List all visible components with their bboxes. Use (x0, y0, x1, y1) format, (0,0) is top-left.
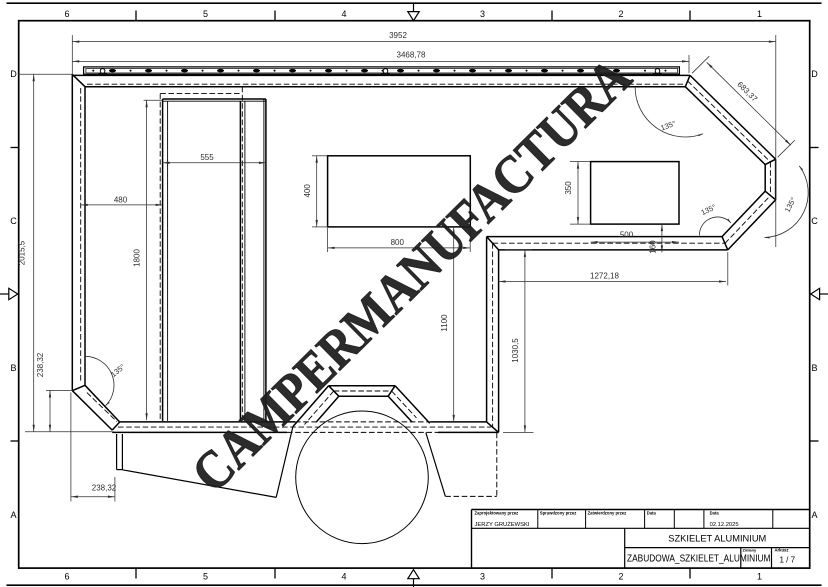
svg-text:Zatwierdzony przez: Zatwierdzony przez (588, 511, 627, 516)
svg-text:SZKIELET ALUMINIUM: SZKIELET ALUMINIUM (668, 533, 766, 543)
svg-text:6: 6 (64, 9, 69, 19)
svg-text:5: 5 (203, 9, 208, 19)
svg-text:02.12.2025: 02.12.2025 (710, 522, 739, 528)
svg-text:1030,5: 1030,5 (511, 338, 520, 363)
svg-text:3952: 3952 (389, 31, 407, 40)
svg-text:Data: Data (710, 511, 720, 516)
svg-text:350: 350 (564, 181, 573, 195)
svg-text:5: 5 (203, 572, 208, 582)
svg-text:6: 6 (64, 572, 69, 582)
svg-text:2: 2 (618, 572, 623, 582)
svg-text:4: 4 (341, 572, 346, 582)
svg-text:1 / 7: 1 / 7 (780, 556, 796, 565)
svg-text:C: C (10, 216, 17, 226)
svg-text:4: 4 (341, 9, 346, 19)
svg-text:3: 3 (480, 9, 485, 19)
svg-text:A: A (811, 510, 817, 520)
svg-text:Zaprojektowany przez: Zaprojektowany przez (475, 511, 519, 516)
svg-text:500: 500 (620, 231, 634, 240)
svg-text:238,32: 238,32 (36, 352, 45, 377)
svg-text:160: 160 (649, 240, 658, 254)
svg-text:400: 400 (303, 184, 312, 198)
svg-text:1: 1 (757, 572, 762, 582)
svg-text:Sprawdzony przez: Sprawdzony przez (540, 511, 577, 516)
svg-text:JERZY GRUŻEWSKI: JERZY GRUŻEWSKI (475, 521, 530, 528)
svg-text:D: D (10, 69, 17, 79)
svg-text:Arkusz: Arkusz (775, 548, 789, 553)
svg-text:A: A (10, 510, 16, 520)
svg-text:B: B (811, 363, 817, 373)
svg-text:555: 555 (200, 153, 214, 162)
svg-text:B: B (10, 363, 16, 373)
svg-text:1100: 1100 (440, 314, 449, 332)
svg-text:238,32: 238,32 (92, 483, 117, 492)
svg-text:3468,78: 3468,78 (397, 51, 426, 60)
svg-text:2: 2 (618, 9, 623, 19)
svg-text:Data: Data (647, 511, 657, 516)
svg-text:1800: 1800 (132, 249, 141, 267)
svg-text:1272,18: 1272,18 (590, 271, 619, 280)
svg-text:C: C (811, 216, 818, 226)
svg-text:1: 1 (757, 9, 762, 19)
svg-text:3: 3 (480, 572, 485, 582)
svg-text:D: D (811, 69, 818, 79)
svg-text:2015,5: 2015,5 (18, 240, 27, 265)
svg-text:480: 480 (114, 195, 128, 204)
svg-text:Zmiany: Zmiany (743, 548, 757, 553)
svg-text:ZABUDOWA_SZKIELET_ALUMINIUM: ZABUDOWA_SZKIELET_ALUMINIUM (627, 553, 771, 564)
